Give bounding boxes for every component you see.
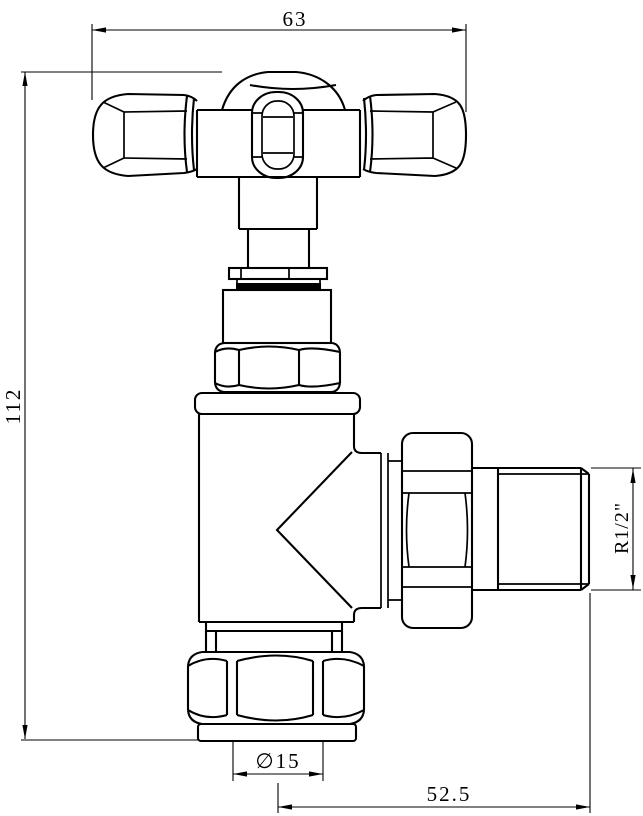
stem-block: [239, 177, 317, 268]
handle-right-arm-facets: [370, 102, 456, 168]
dimension-offset: 52.5: [278, 593, 590, 813]
bonnet-cylinder: [223, 290, 331, 343]
valve-bonnet: [215, 290, 340, 392]
body-chevron: [277, 452, 352, 608]
bonnet-hex-nut: [215, 343, 340, 392]
handle-left-arm-facets: [103, 102, 187, 168]
threaded-tail: [473, 468, 589, 590]
handle-right-arm: [363, 94, 466, 176]
handle-slot-inner: [262, 101, 294, 169]
handle-hub-outline: [197, 72, 360, 177]
dim63-label: 63: [283, 7, 308, 31]
dim525-label: 52.5: [427, 782, 472, 806]
handle-left-arm: [93, 94, 197, 176]
radiator-valve-drawing: 63 112 R1/2" ∅15 52.5: [0, 0, 643, 816]
dimension-pipe-diameter: ∅15: [233, 742, 323, 781]
dim112-arrow-bottom: [22, 725, 27, 739]
stem-flange: [229, 268, 327, 279]
thread-outline: [473, 468, 589, 590]
compression-nut-skirt: [198, 724, 356, 741]
body-outline: [199, 414, 381, 622]
gland-seal-band: [236, 283, 321, 289]
compression-fitting: [188, 622, 364, 741]
dim112-label: 112: [1, 388, 25, 425]
union-nut-flats: [402, 471, 472, 587]
dim15-label: ∅15: [255, 749, 300, 773]
union-nut-outline: [402, 433, 472, 628]
dimR12-label: R1/2": [611, 502, 633, 554]
body-top-flange: [195, 393, 360, 414]
dimR12-arrow-bottom: [630, 575, 635, 589]
handle-slot-outer: [252, 92, 303, 178]
valve-stem: [229, 177, 327, 289]
outlet-tail-flange: [381, 453, 402, 608]
dim525-arrow-left: [278, 804, 292, 809]
stem-flange-splits: [241, 268, 289, 279]
technical-drawing-canvas: 63 112 R1/2" ∅15 52.5: [0, 0, 643, 816]
thread-root-lines: [498, 474, 589, 584]
dim525-arrow-right: [576, 804, 590, 809]
dim63-lines: [92, 24, 466, 112]
valve-handle: [93, 72, 466, 178]
dim15-arrow-left: [233, 771, 247, 776]
compression-hex-nut: [188, 652, 364, 724]
dimR12-arrow-top: [630, 469, 635, 483]
dim15-arrow-right: [309, 771, 323, 776]
valve-body: [195, 393, 402, 622]
dimension-top-width: 63: [92, 7, 466, 112]
union-nut: [402, 433, 472, 628]
dimension-thread: R1/2": [591, 468, 641, 590]
olive-neck: [206, 622, 342, 652]
dim525-lines: [278, 593, 590, 813]
dim63-arrow-left: [92, 27, 106, 32]
dim63-arrow-right: [452, 27, 466, 32]
dim112-arrow-top: [22, 72, 27, 86]
